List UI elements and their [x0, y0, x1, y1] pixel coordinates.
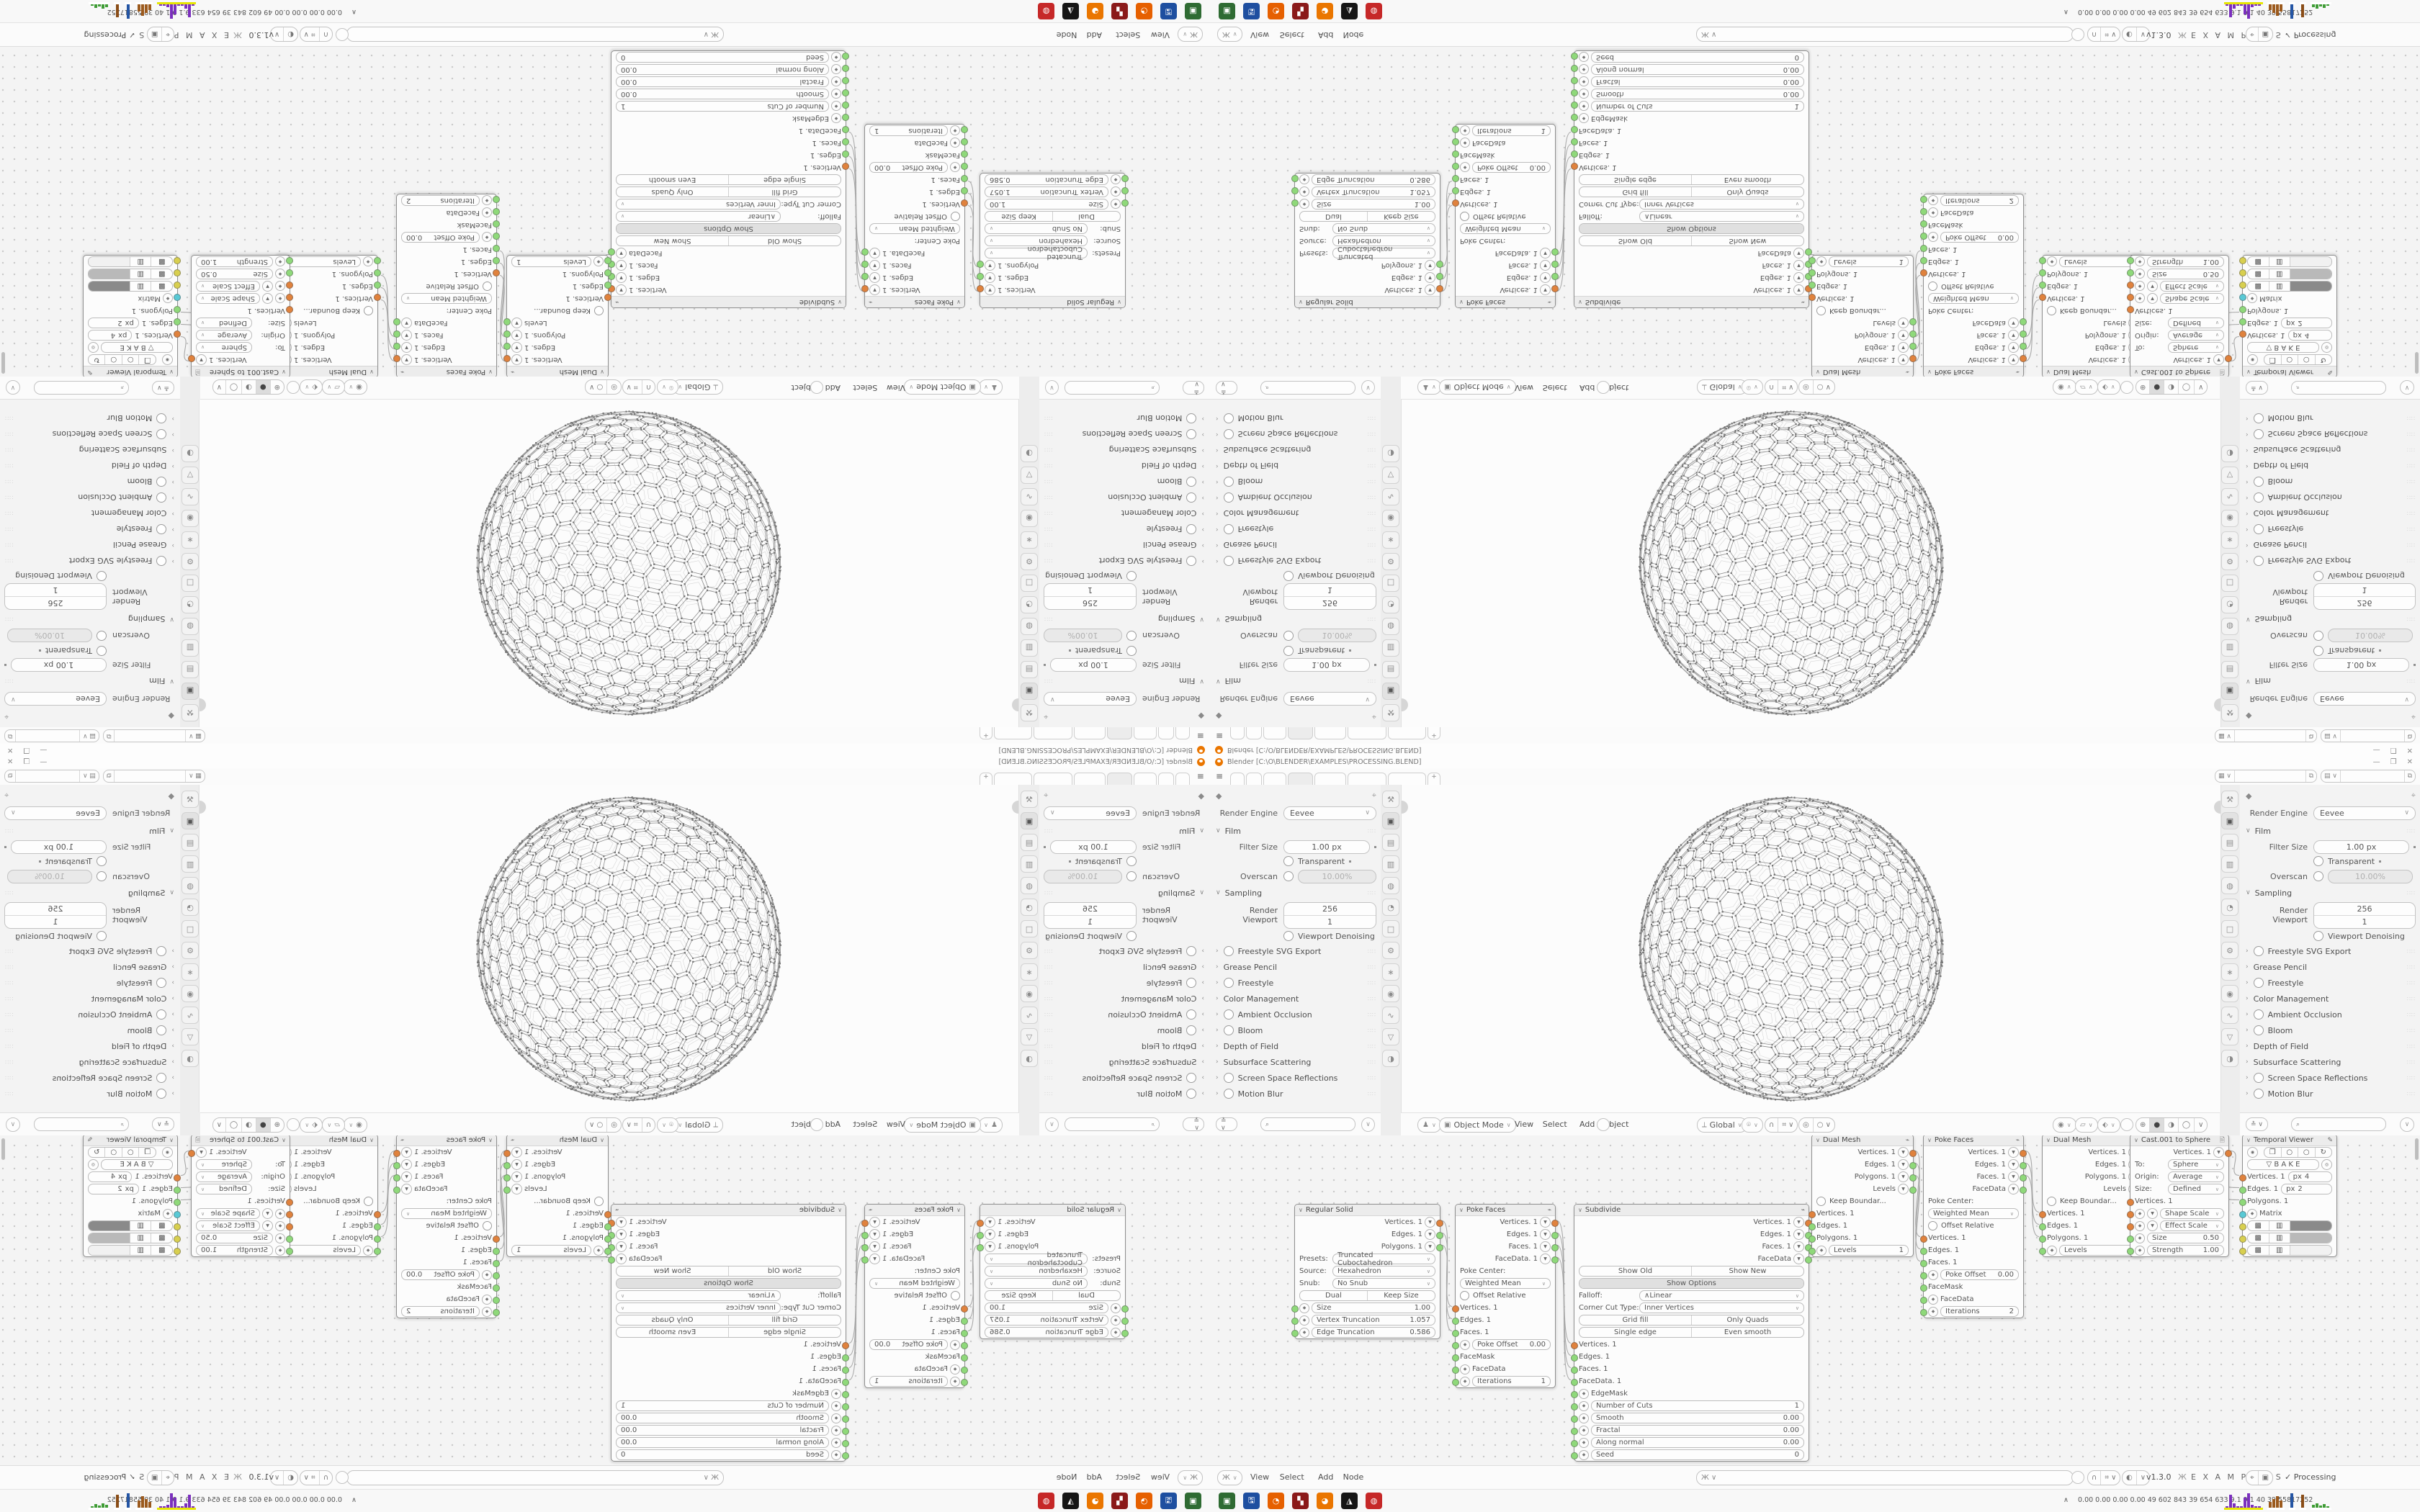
dropdown[interactable]: Weighted Mean∨ [1460, 1278, 1551, 1289]
pin-icon[interactable]: ⌖ [2411, 711, 2416, 721]
stepper-icon[interactable]: ◆ [2135, 257, 2145, 267]
node-socket[interactable] [2239, 1199, 2246, 1206]
value-field[interactable]: Fractal0.00 [616, 76, 829, 87]
socket-menu-button[interactable]: ▼ [1540, 1254, 1551, 1264]
node[interactable]: ∨Regular SolidVertices. 1▼Edges. 1▼Polyg… [1294, 173, 1440, 308]
button[interactable]: Even smooth [617, 1328, 728, 1337]
node-socket[interactable] [842, 78, 849, 85]
color-swatch-row[interactable]: ▩▥ [88, 269, 173, 279]
options-dropdown-button[interactable]: ∨ [2400, 1117, 2414, 1132]
node-socket[interactable] [861, 1244, 869, 1251]
viewport-menu-select[interactable]: Select [853, 1120, 877, 1129]
node-socket[interactable] [1551, 261, 1559, 269]
color-swatch-row[interactable]: ▩▥ [88, 281, 173, 292]
node-header[interactable]: ∨Dual Mesh⌁ [507, 366, 608, 377]
snapping-group[interactable]: ∩⌗ ∨ [622, 379, 655, 395]
node-socket[interactable] [174, 1187, 181, 1194]
world-properties-tab-icon[interactable]: ◔ [1021, 596, 1038, 613]
panel-checkbox[interactable] [156, 1009, 166, 1020]
settings-app-icon[interactable]: ◍ [1366, 1493, 1382, 1509]
collapsed-panel-row[interactable]: ›Bloom∷∷ [4, 474, 174, 490]
panel-checkbox[interactable] [1224, 1025, 1234, 1035]
node-socket[interactable] [2039, 1223, 2046, 1230]
panel-checkbox[interactable] [1186, 1009, 1196, 1020]
viewport-samples-field[interactable]: 1 [2314, 585, 2415, 597]
checkbox[interactable] [97, 931, 107, 941]
workspace-tab[interactable] [1107, 727, 1132, 739]
tree-type-icon[interactable]: Ж∨ [1178, 27, 1203, 42]
value-field[interactable]: 1.00 px [1050, 659, 1137, 672]
snap-magnet-icon[interactable]: ∩ [319, 1471, 332, 1485]
workspace-tab[interactable] [1348, 727, 1386, 739]
proportional-falloff-icon[interactable]: ○ ∨ [1814, 1118, 1834, 1132]
pin-group[interactable]: ⌖▣ [2246, 1470, 2273, 1485]
output-properties-tab-icon[interactable]: ▤ [1382, 834, 1399, 851]
panel-checkbox[interactable] [1224, 946, 1234, 956]
node-socket[interactable] [286, 1223, 293, 1230]
node-menu-add[interactable]: Add [1087, 1472, 1102, 1482]
node-socket[interactable] [842, 53, 849, 60]
node-socket[interactable] [374, 294, 381, 302]
animate-dot-icon[interactable] [1069, 860, 1071, 863]
world-properties-tab-icon[interactable]: ◔ [2221, 899, 2238, 916]
modifiers-properties-tab-icon[interactable]: ⚙ [1382, 553, 1399, 570]
checkbox[interactable] [2313, 646, 2323, 656]
particles-properties-tab-icon[interactable]: ∗ [181, 963, 199, 981]
collapsed-panel-row[interactable]: ›Color Management∷∷ [2246, 991, 2416, 1007]
node-socket[interactable] [174, 1174, 181, 1182]
node-socket[interactable] [861, 1232, 869, 1239]
node-socket[interactable] [842, 1416, 849, 1423]
node-socket[interactable] [977, 1232, 984, 1239]
shading-0-icon[interactable]: ⊕ [2136, 1118, 2150, 1132]
node-socket[interactable] [493, 270, 500, 277]
node-socket[interactable] [2020, 331, 2027, 338]
workspace-tab[interactable] [1230, 773, 1245, 785]
socket-menu-button[interactable]: ▼ [2008, 1159, 2019, 1170]
render-samples-field[interactable]: 256 [2314, 903, 2415, 916]
stepper-icon[interactable]: ◆ [1111, 1328, 1121, 1338]
value-field[interactable]: Fractal0.00 [1591, 1425, 1804, 1436]
overscan-field[interactable]: 10.00% [2328, 629, 2413, 643]
shading-2-icon[interactable]: ◑ [2164, 380, 2179, 394]
bake-label[interactable]: ▽ B A K E [2248, 343, 2318, 352]
dropdown[interactable]: Weighted Mean∨ [401, 1208, 492, 1219]
button[interactable]: Show Old [728, 236, 841, 246]
view-layer-properties-tab-icon[interactable]: ▥ [1021, 855, 1038, 873]
object-properties-tab-icon[interactable]: □ [2221, 575, 2238, 592]
px-field[interactable]: px2 [2281, 318, 2332, 328]
node-socket[interactable] [1805, 249, 1812, 256]
button[interactable]: Keep Size [1368, 1291, 1435, 1300]
node-socket[interactable] [1809, 1223, 1816, 1230]
panel-checkbox[interactable] [156, 429, 166, 439]
stepper-icon[interactable]: ◆ [1579, 1413, 1589, 1423]
render-samples-field[interactable]: 256 [1284, 903, 1376, 916]
dropdown[interactable]: Inner Vertices∨ [616, 199, 781, 210]
options-dropdown-button[interactable]: ∨ [1045, 381, 1059, 395]
pin-icon[interactable]: ⌖ [2411, 791, 2416, 801]
animate-dot-icon[interactable] [2414, 846, 2416, 848]
node-socket[interactable] [961, 1318, 968, 1325]
node-socket[interactable] [842, 163, 849, 171]
viewer-eye-button[interactable]: ◉ [2247, 1147, 2258, 1158]
node-socket[interactable] [393, 331, 400, 338]
scene-properties-tab-icon[interactable]: ◍ [2221, 618, 2238, 635]
viewlayer-selector[interactable]: ▤ ∨⧉ [4, 729, 99, 742]
render-samples-field[interactable]: 256 [5, 597, 106, 610]
tree-icon[interactable]: Ж ∨ [1701, 30, 1716, 38]
color-swatch-row[interactable]: ▩▥ [88, 256, 173, 267]
viewport-3d[interactable] [1401, 785, 2221, 1112]
node-socket[interactable] [604, 1211, 611, 1218]
node-header[interactable]: ∨Poke Faces⌁ [1924, 366, 2023, 377]
node-socket[interactable] [393, 1150, 400, 1157]
button[interactable]: Grid fill [728, 187, 841, 197]
panel-checkbox[interactable] [2254, 429, 2264, 439]
checkbox[interactable] [364, 1197, 373, 1206]
node-socket[interactable] [1452, 1354, 1459, 1362]
object-mode-dropdown[interactable]: ▣Object Mode∨ [1439, 1117, 1516, 1133]
overscan-checkbox[interactable] [97, 871, 107, 881]
node-socket[interactable] [1920, 246, 1927, 253]
xray-toggle[interactable]: ⬖∨ [300, 1117, 323, 1133]
swatch-mode-icon[interactable]: ▥ [2269, 269, 2291, 279]
view-layer-properties-tab-icon[interactable]: ▥ [2221, 639, 2238, 657]
node-socket[interactable] [842, 139, 849, 146]
node-socket[interactable] [842, 1440, 849, 1447]
scene-selector-name-field[interactable] [2235, 770, 2306, 782]
node-socket[interactable] [1920, 1297, 1927, 1304]
collapsed-panel-row[interactable]: ›Screen Space Reflections∷∷ [1044, 1070, 1204, 1086]
display-toggle[interactable]: ○ [2282, 1148, 2299, 1157]
viewport-menu-select[interactable]: Select [1543, 1120, 1567, 1129]
node[interactable]: ∨Regular SolidVertices. 1▼Edges. 1▼Polyg… [980, 1204, 1126, 1339]
node-socket[interactable] [1909, 1187, 1917, 1194]
collapsed-panel-row[interactable]: ›Depth of Field∷∷ [1216, 1038, 1376, 1054]
node-socket[interactable] [2239, 1211, 2246, 1218]
collapsed-panel-row[interactable]: ›Screen Space Reflections∷∷ [2246, 426, 2416, 442]
collapsed-panel-row[interactable]: ›Subsurface Scattering∷∷ [1216, 442, 1376, 458]
pivot-point-dropdown[interactable]: ⌾∨ [657, 1117, 678, 1133]
floppy-64-app-icon[interactable]: 🖫 [1160, 3, 1177, 19]
dropdown[interactable]: Weighted Mean∨ [401, 293, 492, 304]
socket-menu-button[interactable]: ▼ [616, 284, 627, 295]
material-properties-tab-icon[interactable]: ◑ [2221, 1050, 2238, 1067]
options-dropdown-button[interactable]: ∨ [2400, 381, 2414, 395]
settings-app-icon[interactable]: ◍ [1366, 3, 1382, 19]
settings-app-icon[interactable]: ◍ [1038, 1493, 1054, 1509]
render-engine-select[interactable]: Eevee∨ [1283, 693, 1376, 706]
viewport-menu-add[interactable]: Add [1579, 1120, 1595, 1129]
media-app-icon[interactable]: ▚ [1292, 1493, 1309, 1509]
node-socket[interactable] [174, 294, 181, 302]
swatch-mode-icon[interactable]: ▩ [2248, 257, 2269, 266]
viewer-display-group[interactable]: ❒○○↻ [2264, 354, 2332, 365]
node-socket[interactable] [493, 221, 500, 228]
terminal-app-icon[interactable]: ▣ [1219, 1493, 1235, 1509]
collapsed-panel-row[interactable]: ›Freestyle∷∷ [1216, 521, 1376, 537]
value-field[interactable]: Edge Truncation0.586 [1312, 1327, 1435, 1338]
value-field[interactable]: Poke Offset0.00 [401, 1269, 480, 1280]
snap-magnet-icon[interactable]: ∩ [2088, 27, 2101, 41]
scrollbar[interactable] [1, 352, 5, 374]
color-swatch-row[interactable]: ▩▥ [2247, 1233, 2332, 1243]
physics-properties-tab-icon[interactable]: ◉ [1382, 985, 1399, 1002]
media-app-icon[interactable]: ▚ [1292, 3, 1309, 19]
dropdown[interactable]: Hexahedron∨ [985, 1266, 1088, 1277]
object-mode-dropdown[interactable]: ▣Object Mode∨ [1439, 379, 1516, 395]
stepper-icon[interactable]: ◆ [275, 1233, 285, 1243]
color-swatch[interactable] [2290, 1233, 2331, 1243]
render-properties-tab-icon[interactable]: ▣ [2221, 683, 2238, 700]
node-socket[interactable] [493, 1236, 500, 1243]
wolf-app-icon[interactable]: ◮ [1341, 3, 1358, 19]
socket-menu-button[interactable]: ▼ [1793, 1254, 1804, 1264]
checkbox[interactable] [483, 282, 492, 291]
shading-3-icon[interactable]: ◯ [2179, 1118, 2195, 1132]
node-socket[interactable] [493, 197, 500, 204]
node-socket[interactable] [1551, 274, 1559, 281]
snap-magnet-icon[interactable]: ∩ [319, 27, 332, 41]
button[interactable]: Dual [1052, 212, 1120, 221]
scene-selector-icon[interactable]: ▦ ∨ [185, 730, 205, 742]
value-field[interactable]: Number of Cuts1 [1591, 1400, 1804, 1411]
node-socket[interactable] [393, 1162, 400, 1169]
editor-type-button[interactable]: ≛ ∨ [1183, 381, 1204, 395]
socket-menu-button[interactable]: ▼ [511, 330, 522, 341]
minimize-button[interactable]: — [40, 758, 47, 766]
viewport-menu-view[interactable]: View [1515, 1120, 1533, 1129]
socket-menu-button[interactable]: ▼ [2008, 342, 2019, 353]
button-pair[interactable]: Grid fillOnly Quads [1579, 1315, 1804, 1326]
node[interactable]: ∨Regular SolidVertices. 1▼Edges. 1▼Polyg… [980, 173, 1126, 308]
object-properties-tab-icon[interactable]: □ [181, 920, 199, 937]
value-field[interactable]: Size0.50 [2147, 1233, 2224, 1243]
collapsed-panel-row[interactable]: ›Color Management∷∷ [2246, 505, 2416, 521]
socket-menu-button[interactable]: ▼ [1425, 1217, 1435, 1228]
socket-menu-button[interactable]: ▼ [262, 1220, 273, 1231]
shading-2-icon[interactable]: ◑ [2164, 1118, 2179, 1132]
node-header[interactable]: ∨Subdivide⌁ [611, 1205, 846, 1216]
node-socket[interactable] [1809, 1211, 1816, 1218]
button[interactable]: Single edge [1579, 1328, 1692, 1337]
object-mode-dropdown[interactable]: ▣Object Mode∨ [904, 379, 981, 395]
dropdown[interactable]: Shape Scale∨ [2160, 1208, 2224, 1219]
shading-3-icon[interactable]: ◯ [2179, 380, 2195, 394]
collapsed-panel-row[interactable]: ›Freestyle SVG Export∷∷ [2246, 553, 2416, 569]
collapsed-panel-row[interactable]: ›Color Management∷∷ [4, 991, 174, 1007]
collapsed-panel-row[interactable]: ›Subsurface Scattering∷∷ [1044, 442, 1204, 458]
button[interactable]: Only Quads [617, 1315, 728, 1325]
node-socket[interactable] [2020, 343, 2027, 351]
panel-checkbox[interactable] [1224, 1089, 1234, 1099]
dropdown[interactable]: Defined∨ [196, 1184, 252, 1194]
value-field[interactable]: Poke Offset0.00 [401, 232, 480, 243]
floppy-64-app-icon[interactable]: 🖫 [1160, 1493, 1177, 1509]
node-socket[interactable] [1452, 127, 1459, 134]
shading-0-icon[interactable]: ⊕ [270, 1118, 284, 1132]
search-input[interactable]: ⌕ [1260, 1117, 1355, 1131]
bake-label[interactable]: ▽ B A K E [2248, 1160, 2318, 1169]
panel-checkbox[interactable] [1186, 978, 1196, 988]
render-preview-circle[interactable] [287, 381, 300, 394]
node-socket[interactable] [2239, 1223, 2246, 1230]
button[interactable]: Show Options [1579, 224, 1803, 233]
minimize-button[interactable]: — [2373, 758, 2380, 766]
button[interactable]: Keep Size [985, 212, 1052, 221]
render-properties-tab-icon[interactable]: ▣ [1021, 812, 1038, 829]
stepper-icon[interactable]: ◆ [1579, 1438, 1589, 1448]
editor-type-button[interactable]: ≛ ∨ [1216, 1117, 1237, 1131]
stepper-icon[interactable]: ◆ [275, 257, 285, 267]
button[interactable]: Show New [617, 1266, 728, 1276]
node-socket[interactable] [2127, 1248, 2134, 1255]
render-properties-tab-icon[interactable]: ▣ [1382, 683, 1399, 700]
stepper-icon[interactable]: ◆ [2135, 1233, 2145, 1243]
modifiers-properties-tab-icon[interactable]: ⚙ [181, 942, 199, 959]
snap-group[interactable]: ∩⌗ ∨ [2087, 27, 2120, 42]
close-button[interactable]: ✕ [7, 746, 13, 754]
socket-menu-button[interactable]: ▼ [262, 293, 273, 304]
output-properties-tab-icon[interactable]: ▤ [181, 661, 199, 678]
stepper-icon[interactable]: ◆ [1579, 1401, 1589, 1411]
node-socket[interactable] [1809, 1248, 1816, 1255]
workspace-tab[interactable] [1134, 727, 1157, 739]
add-workspace-tab[interactable]: + [1428, 773, 1440, 785]
node-socket[interactable] [1920, 1236, 1927, 1243]
collapsed-panel-row[interactable]: ›Grease Pencil∷∷ [2246, 959, 2416, 975]
constraints-properties-tab-icon[interactable]: ∿ [1021, 488, 1038, 505]
socket-menu-button[interactable]: ▼ [401, 342, 412, 353]
expand-tray-icon[interactable]: ∧ [351, 1496, 357, 1504]
stepper-icon[interactable]: ◆ [1299, 175, 1309, 185]
socket-menu-button[interactable]: ▼ [401, 1184, 412, 1194]
particles-properties-tab-icon[interactable]: ∗ [1382, 531, 1399, 549]
workspace-tab[interactable] [1288, 773, 1313, 785]
node[interactable]: ∨Poke Faces⌁Vertices. 1▼Edges. 1▼Faces. … [1455, 124, 1556, 308]
options-dropdown-button[interactable]: ∨ [1361, 1117, 1375, 1132]
node-menu-view[interactable]: View [1250, 30, 1269, 40]
render-preview-circle[interactable] [287, 1118, 300, 1131]
stepper-icon[interactable]: ◆ [275, 282, 285, 292]
stepper-icon[interactable]: ◆ [1111, 199, 1121, 210]
dropdown[interactable]: Defined∨ [2168, 318, 2224, 328]
node-socket[interactable] [2239, 294, 2246, 302]
render-engine-select[interactable]: Eevee∨ [4, 806, 107, 820]
panel-section-header[interactable]: ∨Film∷∷ [1044, 672, 1204, 690]
particles-properties-tab-icon[interactable]: ∗ [1021, 963, 1038, 981]
node-header[interactable]: ∨Poke Faces⌁ [865, 296, 964, 307]
socket-menu-button[interactable]: ▼ [985, 272, 995, 283]
render-properties-tab-icon[interactable]: ▣ [1382, 812, 1399, 829]
swatch-mode-icon[interactable]: ▩ [2248, 269, 2269, 279]
socket-menu-button[interactable]: ▼ [2147, 293, 2158, 304]
render-samples-field[interactable]: 256 [1284, 597, 1376, 610]
node-socket[interactable] [861, 261, 869, 269]
copy-icon[interactable]: ⧉ [5, 730, 15, 742]
node-socket[interactable] [174, 270, 181, 277]
checkbox[interactable] [1283, 931, 1294, 941]
scene-selector[interactable]: ▦ ∨⧉ [2215, 770, 2317, 783]
panel-checkbox[interactable] [156, 492, 166, 503]
node-socket[interactable] [174, 319, 181, 326]
workspace-tab[interactable] [1246, 773, 1262, 785]
particles-properties-tab-icon[interactable]: ∗ [2221, 531, 2238, 549]
node-socket[interactable] [286, 1248, 293, 1255]
world-properties-tab-icon[interactable]: ◔ [2221, 596, 2238, 613]
node-socket[interactable] [2127, 1199, 2134, 1206]
value-field[interactable]: Iterations2 [1940, 195, 2019, 206]
tree-datablock-selector[interactable]: Ж ∨ [1696, 1470, 2074, 1485]
color-swatch-row[interactable]: ▩▥ [2247, 1220, 2332, 1231]
socket-menu-button[interactable]: ▼ [1540, 1217, 1551, 1228]
color-swatch[interactable] [89, 1246, 130, 1255]
stepper-icon[interactable]: ◆ [2247, 294, 2257, 304]
stepper-icon[interactable]: ◆ [1460, 126, 1470, 136]
menu-icon[interactable]: ≡ [1194, 732, 1204, 740]
snap-magnet-icon[interactable]: ∩ [2088, 1471, 2101, 1485]
color-swatch[interactable] [2290, 1246, 2331, 1255]
node-socket[interactable] [503, 343, 511, 351]
swatch-mode-icon[interactable]: ▥ [2269, 1246, 2291, 1255]
collapsed-panel-row[interactable]: ›Freestyle SVG Export∷∷ [1044, 943, 1204, 959]
snap-magnet-icon[interactable]: ∩ [642, 1118, 655, 1132]
node-socket[interactable] [1436, 1220, 1443, 1227]
firefox-app-icon[interactable]: ◔ [1136, 3, 1152, 19]
material-properties-tab-icon[interactable]: ◑ [181, 1050, 199, 1067]
node-header[interactable]: ∨Poke Faces⌁ [397, 366, 496, 377]
panel-checkbox[interactable] [1224, 1073, 1234, 1083]
annotate-circle-button[interactable] [1597, 1118, 1610, 1131]
viewport-menu-view[interactable]: View [887, 383, 905, 392]
button[interactable]: Show New [617, 236, 728, 246]
render-engine-select[interactable]: Eevee∨ [2313, 806, 2416, 820]
snap-group[interactable]: ∩⌗ ∨ [2087, 1470, 2120, 1485]
node-socket[interactable] [393, 1174, 400, 1182]
node-socket[interactable] [1452, 163, 1459, 171]
dropdown[interactable]: Average∨ [2168, 1171, 2224, 1182]
node-socket[interactable] [1121, 1305, 1129, 1313]
button-wide[interactable]: Show Options [616, 223, 841, 234]
panel-section-header[interactable]: ∨Sampling∷∷ [1044, 884, 1204, 901]
workspace-tab[interactable] [1263, 773, 1286, 785]
checkbox[interactable] [2313, 571, 2323, 581]
button[interactable]: Show New [1692, 236, 1803, 246]
physics-properties-tab-icon[interactable]: ◉ [1021, 985, 1038, 1002]
node-socket[interactable] [1551, 286, 1559, 293]
node-socket[interactable] [1571, 1379, 1578, 1386]
stepper-icon[interactable]: ◆ [1928, 233, 1938, 243]
workspace-tab[interactable] [1388, 773, 1426, 785]
button[interactable]: Show Old [1579, 1266, 1692, 1276]
node-socket[interactable] [1809, 270, 1816, 277]
stepper-icon[interactable]: ◆ [275, 1209, 285, 1219]
value-field[interactable]: Number of Cuts1 [616, 101, 829, 112]
node-socket[interactable] [2039, 294, 2046, 302]
checkbox[interactable] [951, 212, 960, 221]
viewlayer-selector-name-field[interactable] [15, 770, 79, 782]
display-toggle[interactable]: ○ [105, 355, 122, 364]
node[interactable]: ∨Cast.001 to Sphere🗎Vertices. 1▼To:Spher… [2130, 255, 2229, 377]
copy-icon[interactable]: ⧉ [5, 770, 15, 782]
node-socket[interactable] [374, 1236, 381, 1243]
wolf-app-icon[interactable]: ◮ [1341, 1493, 1358, 1509]
node-socket[interactable] [1571, 151, 1578, 158]
dropdown[interactable]: Sphere∨ [2168, 1159, 2224, 1170]
stepper-icon[interactable]: ◆ [1460, 1377, 1470, 1387]
material-properties-tab-icon[interactable]: ◑ [1021, 445, 1038, 462]
